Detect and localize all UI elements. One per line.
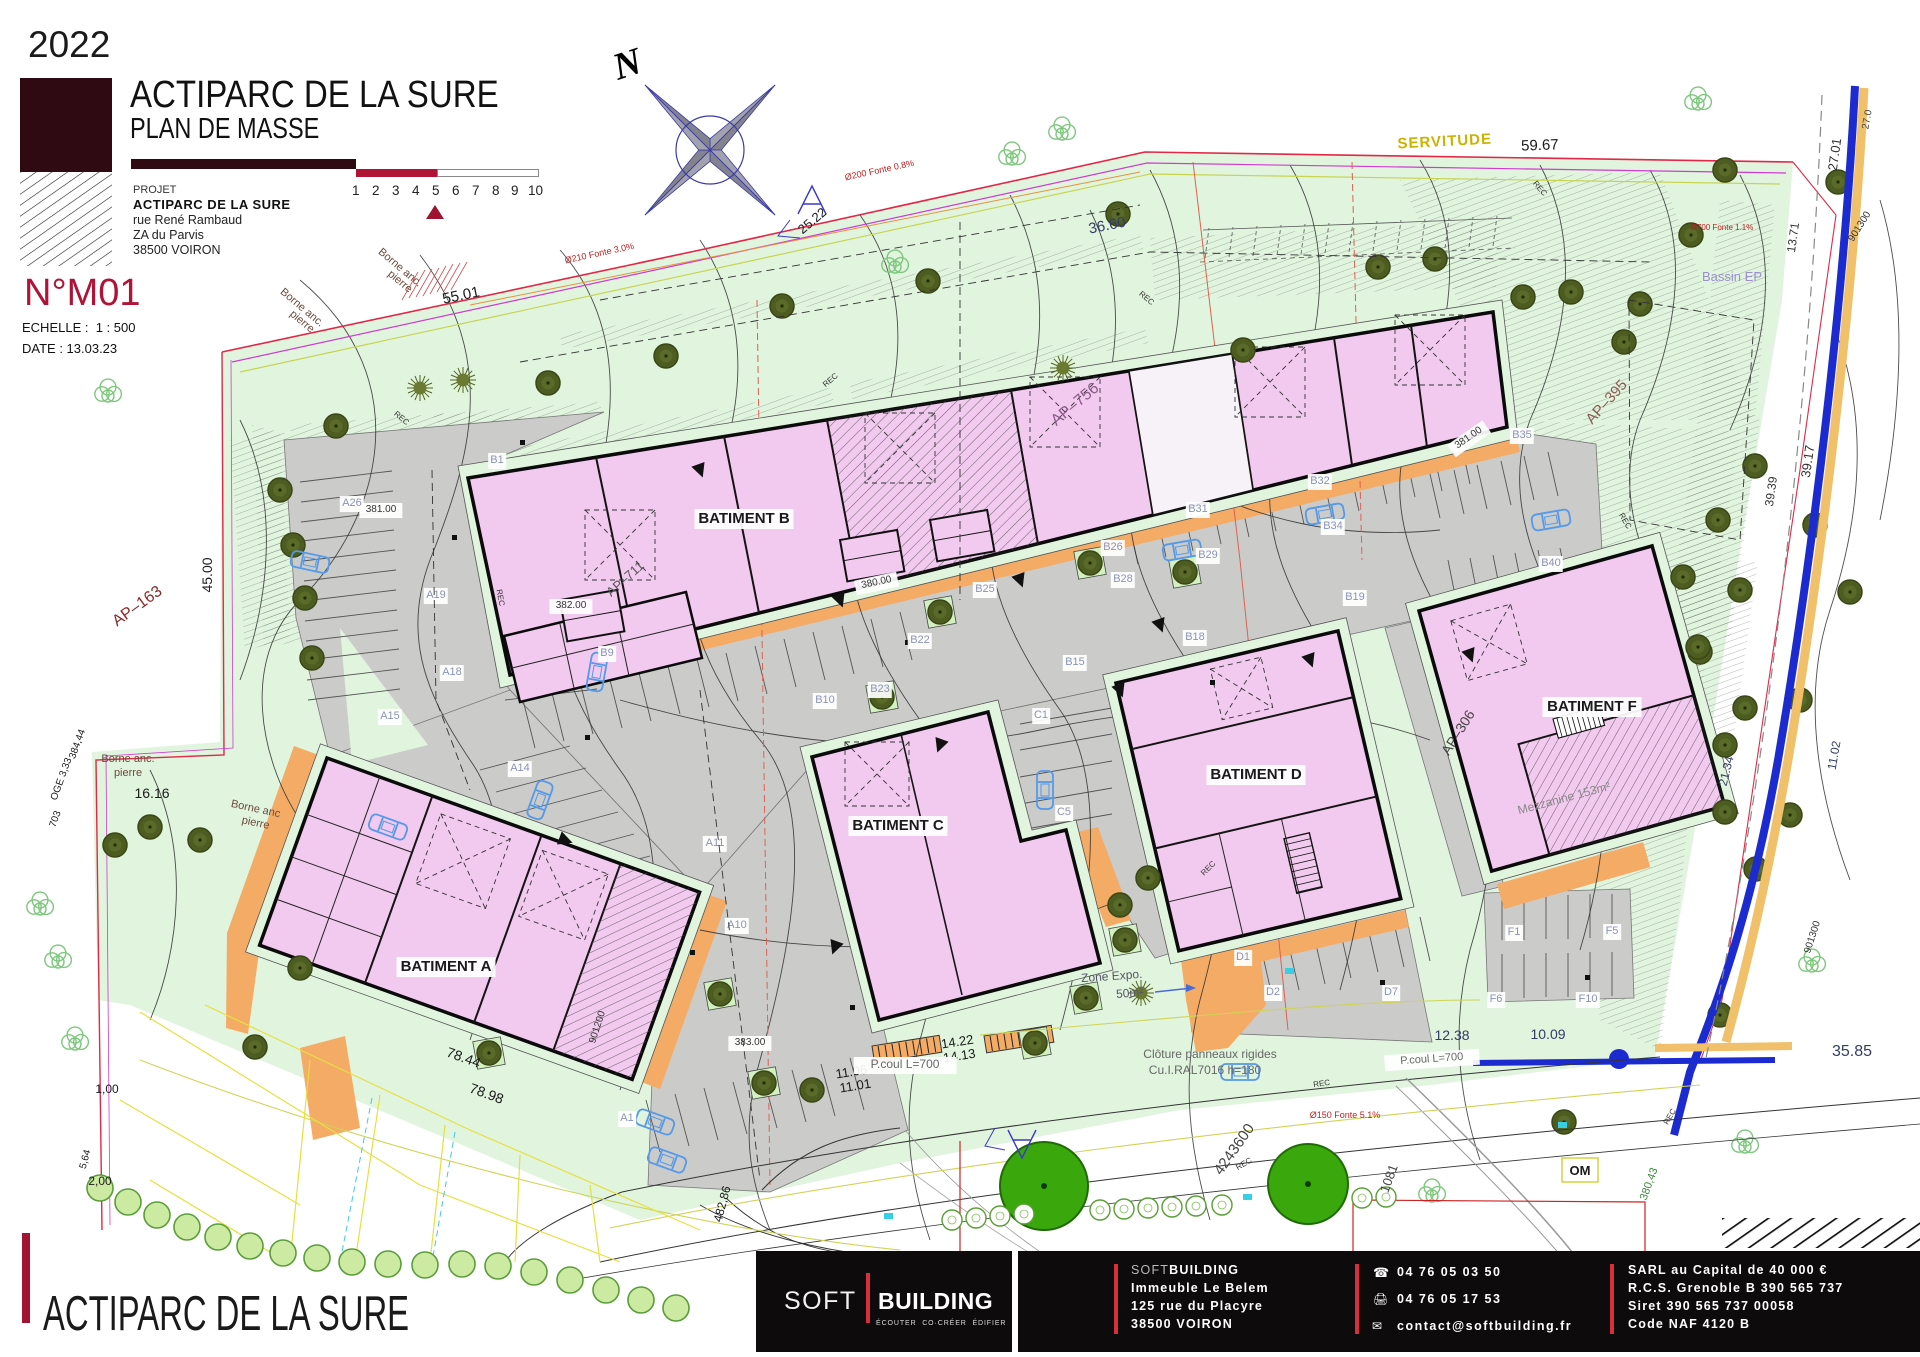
svg-text:C5: C5 (1057, 806, 1071, 818)
svg-text:C1: C1 (1034, 709, 1048, 721)
svg-text:A15: A15 (380, 710, 400, 722)
svg-text:11.02: 11.02 (1825, 739, 1844, 770)
svg-text:F6: F6 (1490, 993, 1503, 1005)
svg-text:B23: B23 (870, 683, 890, 695)
svg-text:BATIMENT C: BATIMENT C (852, 817, 944, 834)
svg-text:39.39: 39.39 (1762, 475, 1780, 507)
svg-text:P.coul L=700: P.coul L=700 (871, 1057, 940, 1071)
svg-text:B29: B29 (1198, 549, 1218, 561)
svg-text:384,44: 384,44 (67, 727, 88, 760)
svg-text:A10: A10 (727, 919, 747, 931)
svg-text:BATIMENT F: BATIMENT F (1547, 698, 1637, 715)
svg-text:B40: B40 (1541, 557, 1561, 569)
svg-text:4243600: 4243600 (1211, 1121, 1258, 1179)
svg-text:B31: B31 (1188, 503, 1208, 515)
svg-text:A19: A19 (426, 589, 446, 601)
svg-text:703: 703 (48, 809, 64, 829)
svg-text:A14: A14 (510, 762, 530, 774)
svg-text:F5: F5 (1606, 925, 1619, 937)
svg-text:Ø200 Fonte 0.8%: Ø200 Fonte 0.8% (844, 158, 915, 182)
svg-text:F1: F1 (1508, 926, 1521, 938)
svg-text:381.00: 381.00 (366, 504, 397, 515)
svg-text:Borne anc.: Borne anc. (101, 753, 154, 765)
svg-text:Clôture panneaux rigides: Clôture panneaux rigides (1143, 1047, 1276, 1061)
svg-text:39.17: 39.17 (1798, 444, 1817, 478)
svg-text:AP–163: AP–163 (109, 583, 165, 630)
svg-text:5,64: 5,64 (78, 1148, 94, 1170)
svg-text:B32: B32 (1310, 475, 1330, 487)
svg-text:B26: B26 (1103, 541, 1123, 553)
svg-text:N: N (607, 40, 649, 89)
svg-text:A26: A26 (342, 497, 362, 509)
svg-text:B18: B18 (1185, 631, 1205, 643)
svg-text:901300: 901300 (1802, 919, 1823, 955)
svg-text:D2: D2 (1266, 986, 1280, 998)
svg-text:45.00: 45.00 (199, 557, 215, 592)
svg-text:B10: B10 (815, 694, 835, 706)
svg-text:1,00: 1,00 (95, 1082, 119, 1096)
svg-text:BATIMENT B: BATIMENT B (698, 510, 790, 527)
svg-text:OM: OM (1570, 1163, 1591, 1178)
svg-text:380,43: 380,43 (1638, 1166, 1661, 1202)
svg-text:2,00: 2,00 (88, 1174, 112, 1188)
svg-text:B35: B35 (1512, 429, 1532, 441)
svg-text:10.09: 10.09 (1530, 1026, 1565, 1042)
svg-text:16.16: 16.16 (134, 785, 169, 801)
svg-text:Cu.I.RAL7016 h=180: Cu.I.RAL7016 h=180 (1149, 1063, 1262, 1077)
svg-text:50m²: 50m² (1116, 985, 1144, 1001)
svg-text:BATIMENT D: BATIMENT D (1210, 766, 1302, 783)
svg-text:D1: D1 (1236, 951, 1250, 963)
svg-text:A18: A18 (442, 666, 462, 678)
svg-text:383.00: 383.00 (735, 1037, 766, 1048)
svg-text:B1: B1 (490, 454, 503, 466)
svg-text:OGE 3,33: OGE 3,33 (49, 756, 75, 802)
svg-text:F10: F10 (1579, 993, 1598, 1005)
svg-text:1081: 1081 (1377, 1162, 1401, 1194)
svg-text:A11: A11 (706, 837, 725, 849)
svg-text:Ø150 Fonte 5.1%: Ø150 Fonte 5.1% (1310, 1110, 1381, 1120)
svg-text:Bassin EP: Bassin EP (1702, 269, 1762, 284)
svg-text:27.01: 27.01 (1825, 137, 1844, 171)
svg-text:B19: B19 (1345, 591, 1365, 603)
svg-text:12.38: 12.38 (1434, 1027, 1469, 1043)
svg-text:BATIMENT A: BATIMENT A (401, 958, 492, 975)
svg-text:B15: B15 (1065, 656, 1085, 668)
svg-text:382.00: 382.00 (556, 600, 587, 611)
svg-text:B22: B22 (910, 634, 930, 646)
svg-text:27.0: 27.0 (1860, 109, 1874, 131)
svg-text:13.71: 13.71 (1784, 221, 1802, 253)
svg-text:35.85: 35.85 (1832, 1043, 1872, 1060)
svg-text:pierre: pierre (114, 767, 142, 779)
svg-text:Ø700 Fonte 1.1%: Ø700 Fonte 1.1% (1691, 223, 1754, 232)
svg-text:Ø210 Fonte 3.0%: Ø210 Fonte 3.0% (564, 241, 635, 265)
svg-text:B28: B28 (1113, 573, 1133, 585)
svg-text:B25: B25 (975, 583, 995, 595)
svg-text:A1: A1 (620, 1112, 633, 1124)
svg-text:59.67: 59.67 (1521, 136, 1559, 154)
svg-text:B9: B9 (600, 647, 613, 659)
svg-text:SERVITUDE: SERVITUDE (1397, 131, 1492, 153)
svg-text:D7: D7 (1384, 986, 1398, 998)
svg-text:B34: B34 (1323, 520, 1343, 532)
